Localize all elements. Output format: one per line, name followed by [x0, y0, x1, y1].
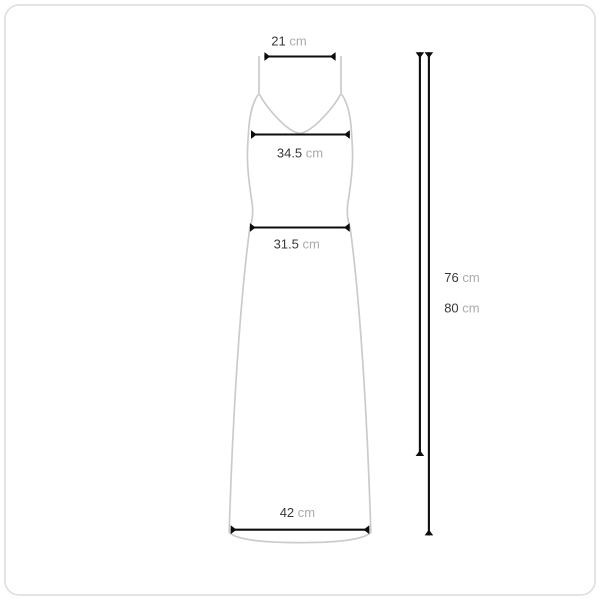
svg-text:34.5 cm: 34.5 cm — [277, 145, 323, 160]
svg-text:31.5 cm: 31.5 cm — [274, 237, 320, 252]
svg-text:76 cm: 76 cm — [444, 270, 479, 285]
svg-text:42 cm: 42 cm — [280, 505, 315, 520]
svg-text:80 cm: 80 cm — [444, 300, 479, 315]
svg-text:21 cm: 21 cm — [271, 33, 306, 48]
